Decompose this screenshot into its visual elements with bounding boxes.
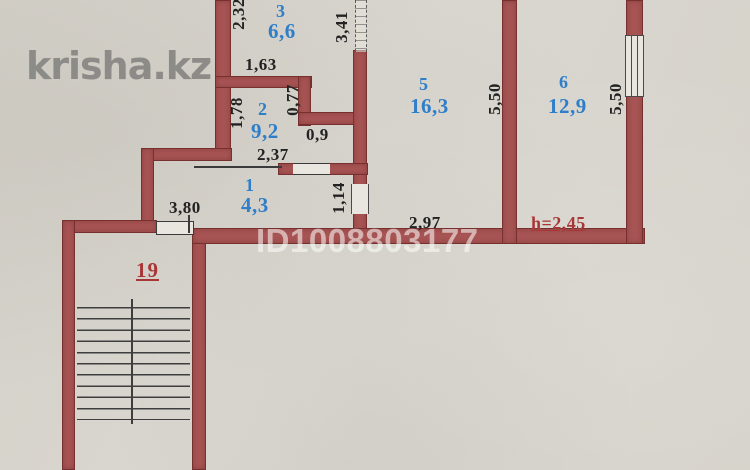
room6-window (625, 35, 644, 97)
room-area-3: 6,6 (268, 19, 296, 44)
room1-partition-line (194, 166, 282, 168)
stairwell-number: 19 (136, 258, 159, 283)
dimension-label: 2,37 (257, 145, 289, 165)
listing-id-watermark: ID1008803177 (256, 222, 479, 260)
dimension-label: 3,80 (169, 198, 201, 218)
staircase-treads (77, 307, 190, 420)
site-watermark: krisha.kz (26, 44, 211, 88)
floor-plan: 1 4,3 2 9,2 3 6,6 5 16,3 6 12,9 19 h=2,4… (0, 0, 750, 470)
dimension-label: 5,50 (606, 69, 626, 129)
dimension-label: 2,32 (229, 0, 249, 44)
dimension-label: 1,78 (227, 83, 247, 143)
room-area-6: 12,9 (548, 94, 587, 119)
dimension-label: 0,9 (306, 125, 329, 145)
wall-step-horizontal (141, 148, 232, 161)
dimension-label: 1,63 (245, 55, 277, 75)
room-area-1: 4,3 (241, 193, 269, 218)
dimension-label: 1,14 (329, 168, 349, 228)
dimension-label: 3,41 (332, 0, 352, 57)
room-number-5: 5 (419, 74, 428, 95)
wall-stairwell-right (192, 228, 206, 470)
ceiling-height-label: h=2,45 (531, 213, 586, 234)
room-area-2: 9,2 (251, 119, 279, 144)
staircase-center-line (131, 299, 133, 424)
room5-door-opening (351, 184, 369, 214)
room2-door-opening (293, 163, 330, 175)
room-number-2: 2 (258, 99, 267, 120)
dimension-label: 0,77 (283, 70, 303, 130)
balcony-dashed-opening (355, 0, 367, 52)
dimension-label: 5,50 (485, 69, 505, 129)
wall-stairwell-top (62, 220, 157, 233)
room-number-6: 6 (559, 72, 568, 93)
wall-stairwell-left (62, 220, 75, 470)
room-area-5: 16,3 (410, 94, 449, 119)
